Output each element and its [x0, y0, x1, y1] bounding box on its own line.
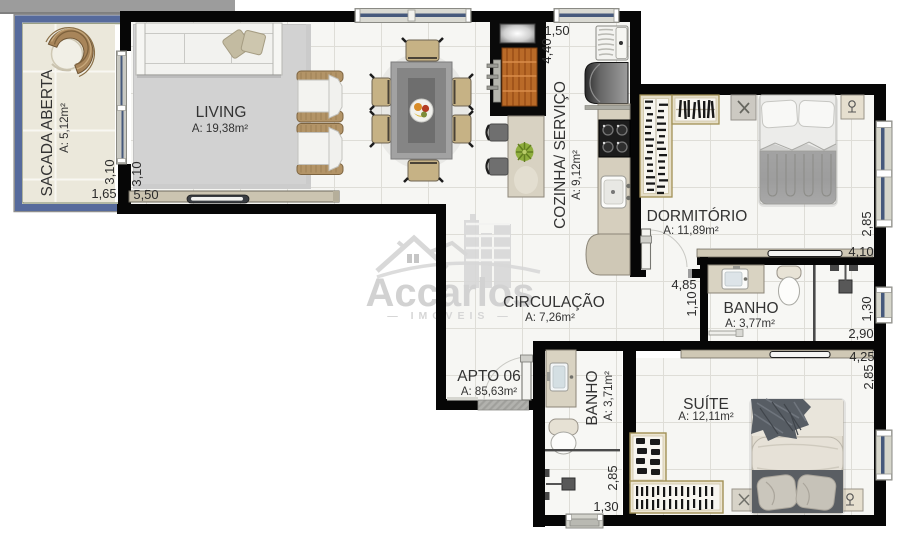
svg-text:2,90: 2,90	[848, 326, 873, 341]
svg-text:4,25: 4,25	[849, 349, 874, 364]
svg-text:A: 9,12m²: A: 9,12m²	[571, 150, 583, 200]
svg-text:2,85: 2,85	[605, 465, 620, 490]
svg-text:CIRCULAÇÃO: CIRCULAÇÃO	[503, 294, 605, 311]
svg-text:3,10: 3,10	[129, 161, 144, 186]
svg-text:3,10: 3,10	[102, 159, 117, 184]
svg-text:A: 3,71m²: A: 3,71m²	[603, 371, 615, 421]
svg-text:A: 85,63m²: A: 85,63m²	[461, 386, 517, 398]
svg-text:1,10: 1,10	[684, 291, 699, 316]
svg-text:LIVING: LIVING	[196, 104, 247, 121]
svg-text:A: 12,11m²: A: 12,11m²	[678, 411, 734, 423]
svg-text:BANHO: BANHO	[723, 300, 778, 317]
svg-text:A: 11,89m²: A: 11,89m²	[663, 225, 719, 237]
svg-text:1,30: 1,30	[859, 296, 874, 321]
svg-text:— IMÓVEIS —: — IMÓVEIS —	[387, 309, 513, 322]
svg-text:5,50: 5,50	[133, 187, 158, 202]
svg-text:DORMITÓRIO: DORMITÓRIO	[647, 208, 748, 225]
svg-text:A: 7,26m²: A: 7,26m²	[525, 312, 575, 324]
svg-text:4,40: 4,40	[539, 38, 554, 63]
svg-text:APTO 06: APTO 06	[457, 368, 520, 385]
svg-text:1,65: 1,65	[91, 186, 116, 201]
svg-text:4,85: 4,85	[671, 277, 696, 292]
svg-text:2,85: 2,85	[859, 211, 874, 236]
svg-text:1,50: 1,50	[544, 23, 569, 38]
svg-text:1,30: 1,30	[593, 499, 618, 514]
svg-text:BANHO: BANHO	[584, 370, 601, 425]
svg-text:SACADA ABERTA: SACADA ABERTA	[39, 69, 56, 197]
svg-text:2,85: 2,85	[861, 364, 876, 389]
svg-text:A: 19,38m²: A: 19,38m²	[192, 123, 248, 135]
svg-text:COZINHA/ SERVIÇO: COZINHA/ SERVIÇO	[552, 81, 569, 229]
svg-text:A: 5,12m²: A: 5,12m²	[59, 103, 71, 153]
svg-text:4,10: 4,10	[848, 244, 873, 259]
svg-text:A: 3,77m²: A: 3,77m²	[725, 318, 775, 330]
